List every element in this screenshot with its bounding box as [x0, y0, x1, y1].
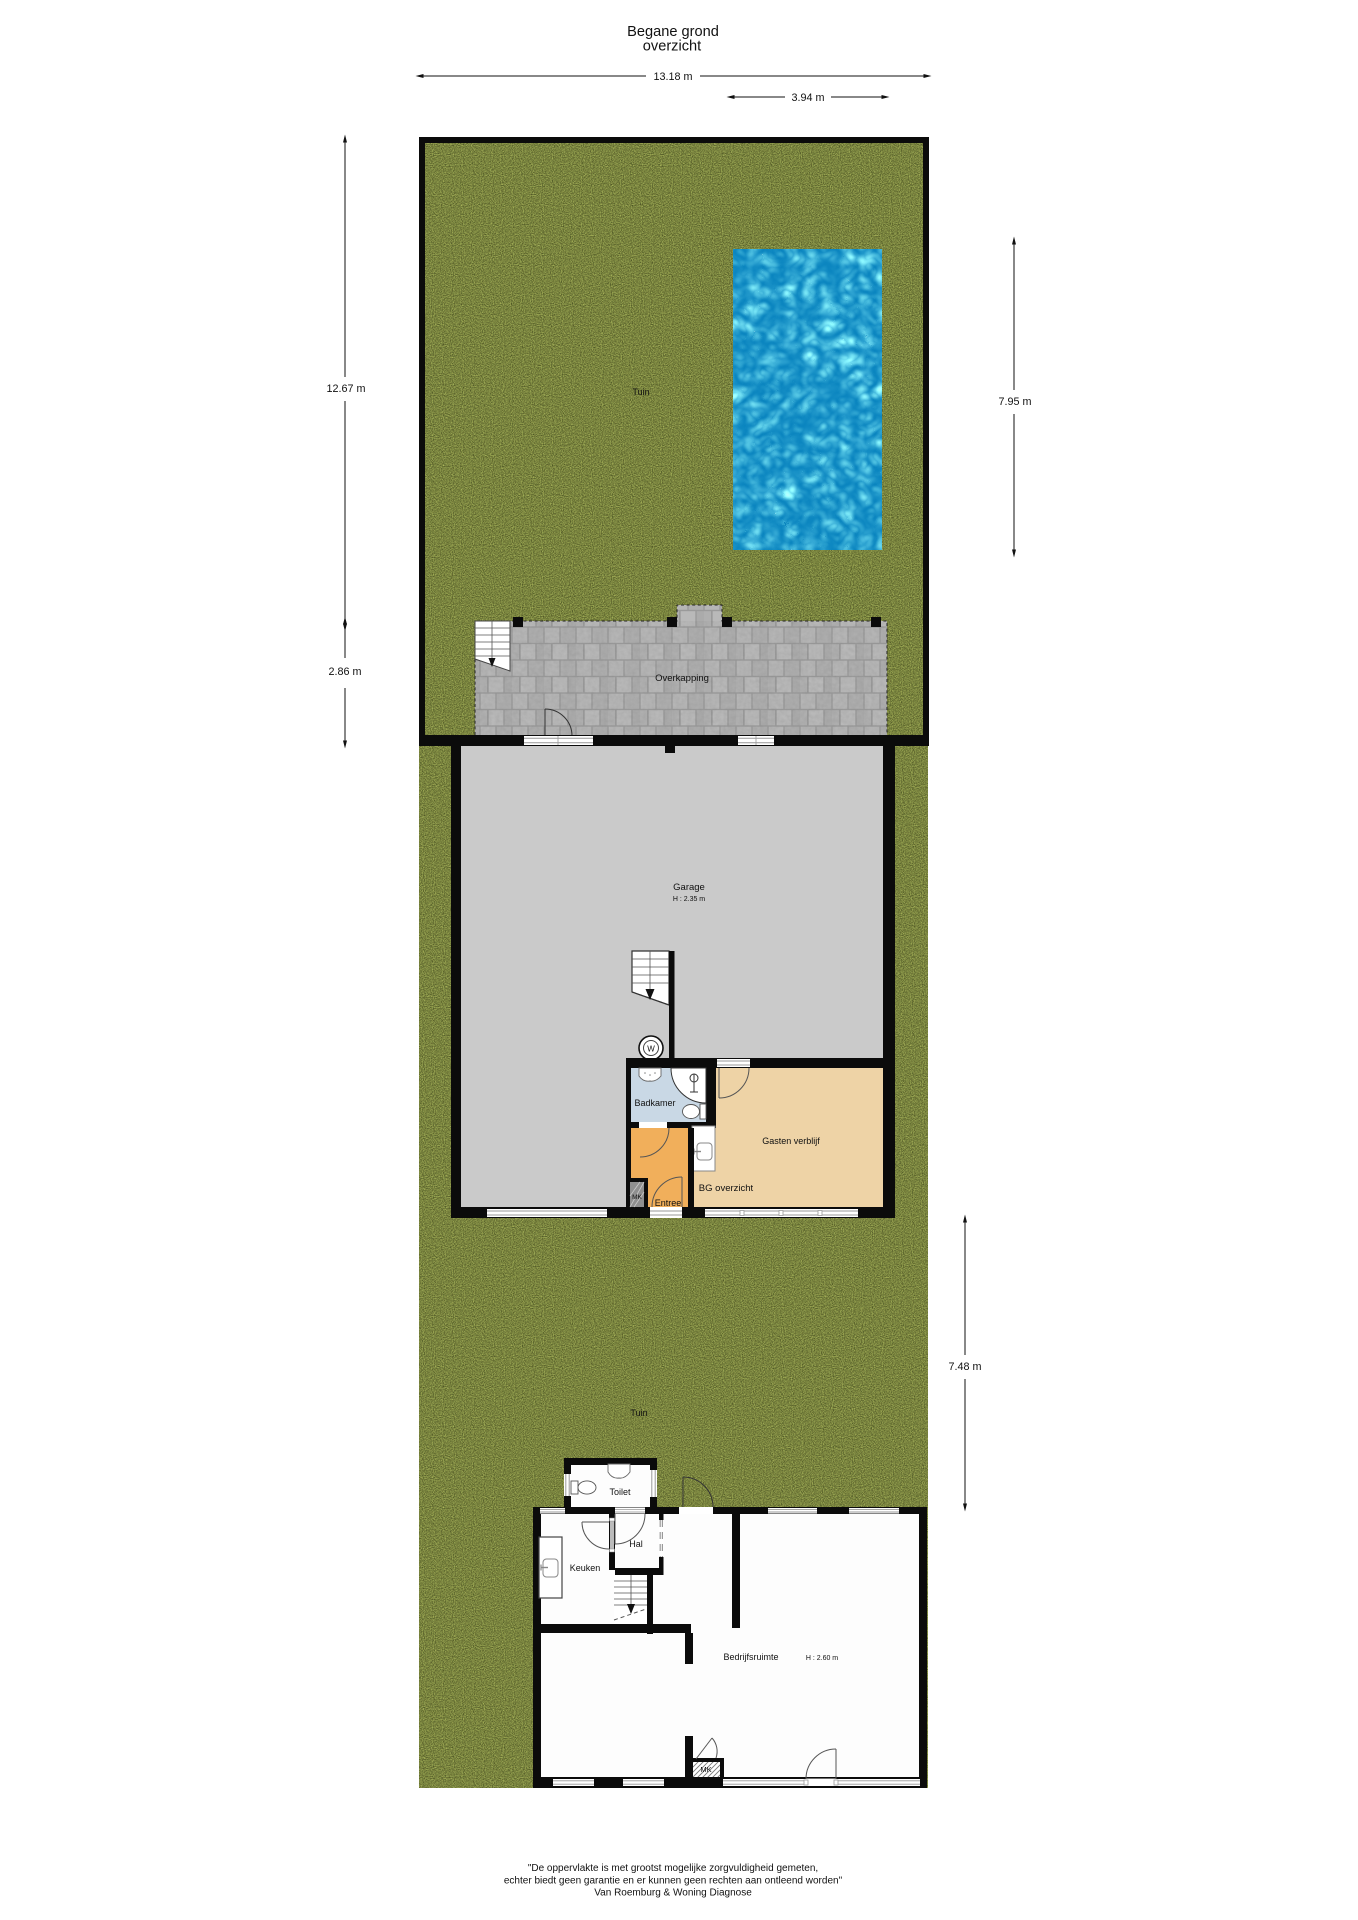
- svg-text:Garage: Garage: [673, 882, 705, 893]
- svg-text:7.48 m: 7.48 m: [948, 1361, 981, 1373]
- svg-text:W: W: [647, 1045, 655, 1054]
- svg-text:Toilet: Toilet: [609, 1487, 631, 1497]
- svg-text:12.67 m: 12.67 m: [326, 383, 365, 395]
- svg-text:7.95 m: 7.95 m: [998, 396, 1031, 408]
- svg-text:3.94 m: 3.94 m: [791, 92, 824, 104]
- svg-text:Van Roemburg & Woning Diagnose: Van Roemburg & Woning Diagnose: [594, 1888, 752, 1899]
- svg-text:Entree: Entree: [655, 1198, 682, 1208]
- svg-text:Keuken: Keuken: [570, 1563, 601, 1573]
- svg-text:BG overzicht: BG overzicht: [699, 1183, 754, 1194]
- svg-text:Hal: Hal: [629, 1539, 643, 1549]
- svg-text:13.18 m: 13.18 m: [653, 71, 692, 83]
- svg-text:Overkapping: Overkapping: [655, 673, 709, 684]
- svg-text:overzicht: overzicht: [643, 39, 701, 55]
- svg-text:"De oppervlakte is met grootst: "De oppervlakte is met grootst mogelijke…: [528, 1863, 818, 1874]
- svg-text:MK: MK: [700, 1765, 711, 1774]
- svg-text:H : 2.60 m: H : 2.60 m: [806, 1655, 838, 1662]
- svg-text:Bedrijfsruimte: Bedrijfsruimte: [723, 1652, 778, 1662]
- svg-text:2.86 m: 2.86 m: [328, 666, 361, 678]
- svg-text:Gasten verblijf: Gasten verblijf: [762, 1136, 820, 1146]
- svg-text:Tuin: Tuin: [630, 1408, 647, 1418]
- svg-text:H : 2.35 m: H : 2.35 m: [673, 896, 705, 903]
- svg-text:Badkamer: Badkamer: [634, 1098, 675, 1108]
- svg-text:Tuin: Tuin: [632, 387, 649, 397]
- svg-text:echter biedt geen garantie en: echter biedt geen garantie en er kunnen …: [504, 1875, 843, 1886]
- svg-text:MK: MK: [632, 1194, 642, 1201]
